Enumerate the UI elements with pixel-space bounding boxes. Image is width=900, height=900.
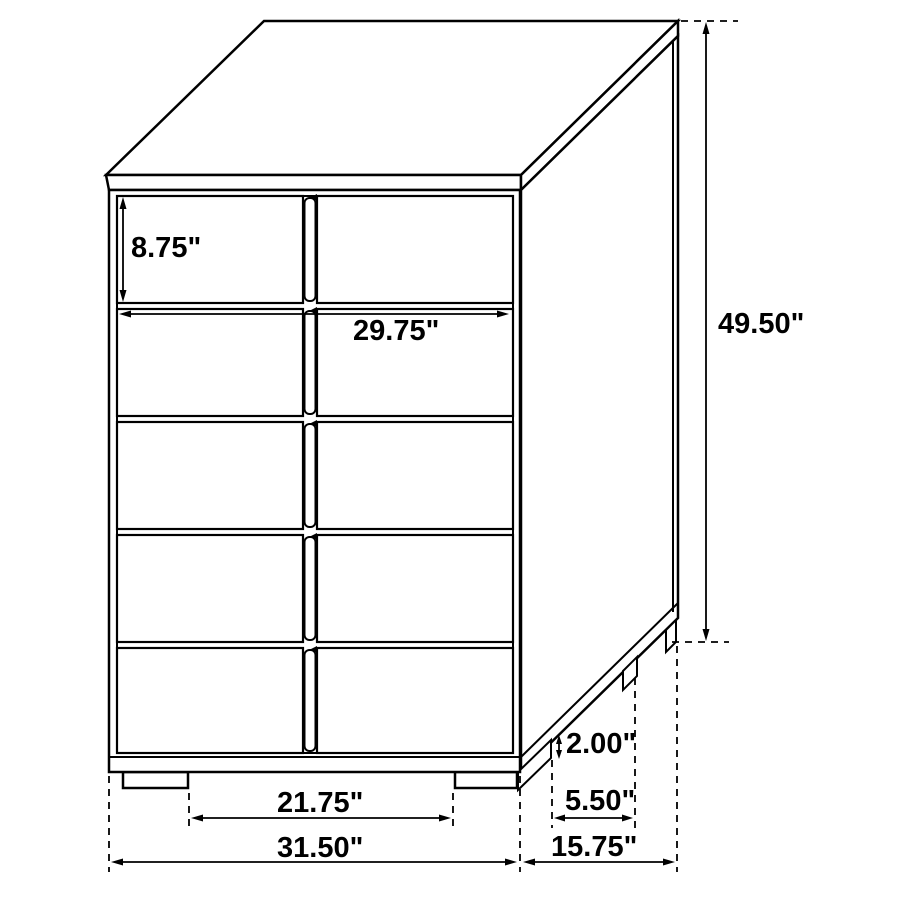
- drawer-divider-bar: [305, 424, 316, 527]
- drawer-front: [117, 535, 303, 642]
- dim-label-side-foot-spacing: 5.50": [565, 785, 635, 817]
- front-foot-left: [123, 772, 188, 788]
- dim-label-overall-depth: 15.75": [551, 831, 637, 863]
- dim-front-foot-spacing: 21.75": [189, 787, 453, 828]
- drawer-front: [117, 309, 303, 416]
- drawer-divider-bar: [305, 650, 316, 751]
- drawer-front: [317, 196, 513, 303]
- dim-label-overall-height: 49.50": [718, 308, 804, 340]
- dim-foot-height: 2.00": [556, 728, 636, 760]
- drawer-front: [117, 422, 303, 529]
- dim-label-front-foot-spacing: 21.75": [277, 787, 363, 819]
- drawer-front: [317, 648, 513, 753]
- drawer-divider-bar: [305, 537, 316, 640]
- drawer-divider-bars: [305, 194, 318, 751]
- dim-label-drawer-front-width: 29.75": [353, 315, 439, 347]
- drawer-divider-bar: [305, 198, 316, 301]
- dim-label-overall-width: 31.50": [277, 832, 363, 864]
- dim-label-top-drawer-height: 8.75": [131, 232, 201, 264]
- drawer-front: [317, 422, 513, 529]
- drawer-front: [317, 535, 513, 642]
- front-foot-right: [455, 772, 517, 788]
- dim-label-foot-height: 2.00": [566, 728, 636, 760]
- drawer-divider-bar: [305, 311, 316, 414]
- drawer-front: [117, 648, 303, 753]
- dimension-diagram-page: 8.75" 29.75" 49.50" 2.00": [0, 0, 900, 900]
- chest-dimension-drawing: 8.75" 29.75" 49.50" 2.00": [0, 0, 900, 900]
- dim-overall-height: 49.50": [672, 21, 804, 642]
